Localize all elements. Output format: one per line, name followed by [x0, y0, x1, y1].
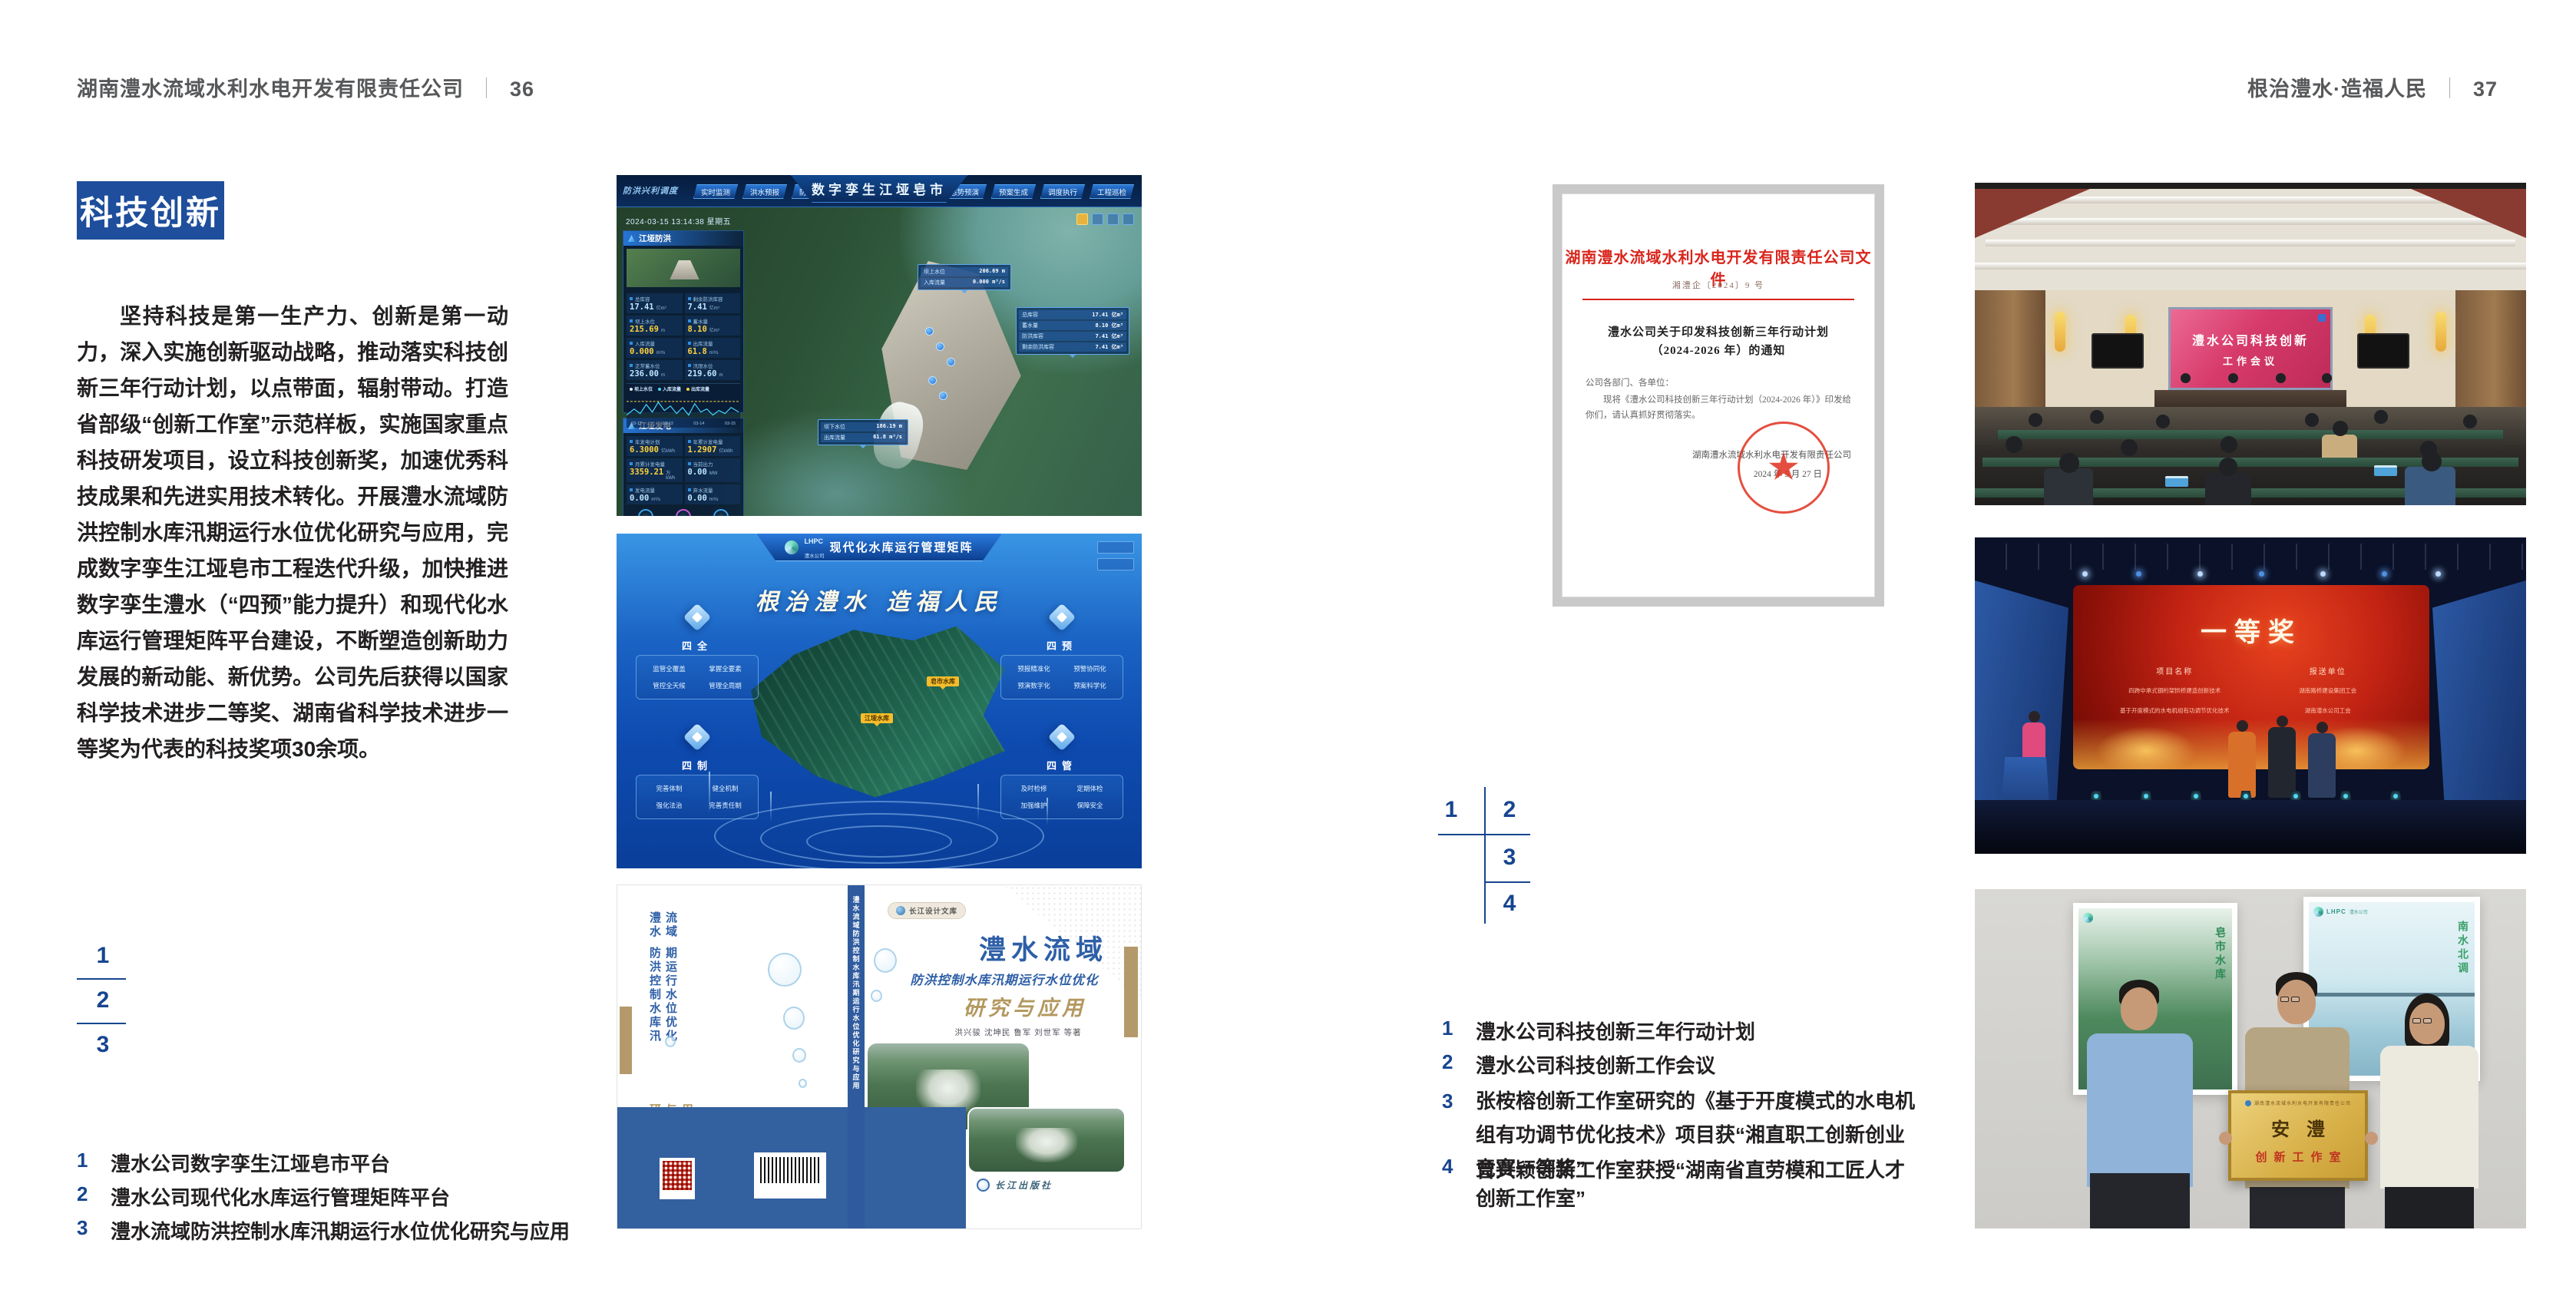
mode-label: 防洪兴利调度: [623, 184, 678, 197]
series-badge: 长江设计文库: [888, 902, 966, 919]
screen-title-line2: 工作会议: [2223, 353, 2278, 368]
figure-index-4: 4: [1488, 891, 1531, 917]
flood-stats-grid: 总库容17.41亿m³ 剩余防洪库容7.41亿m³ 坝上水位215.69m 蓄水…: [623, 290, 743, 383]
chart-legend: 坝上水位 入库流量 出库流量: [627, 384, 740, 394]
water-droplet: [871, 990, 882, 1002]
stat-item: 月累计发电量3359.21万kWh: [627, 458, 683, 482]
dam-photo-small: [967, 1107, 1126, 1173]
callout-downstream: 坝下水位186.19 m 出库流量61.8 m³/s: [818, 419, 908, 445]
stage-light: [2082, 571, 2088, 577]
header-separator: ｜: [2439, 78, 2461, 101]
bridge-deck: [2309, 993, 2475, 997]
plaque-header: 湖南澧水流域水利水电开发有限责任公司: [2245, 1099, 2351, 1106]
caption-text: 澧水公司科技创新三年行动计划: [1476, 1017, 1755, 1045]
map-label-zaoshi: 皂市水库: [927, 676, 959, 686]
caption-row: 2澧水公司现代化水库运行管理矩阵平台: [77, 1182, 450, 1211]
letterhead-rule: [1582, 299, 1854, 300]
power-stats-grid: 年发电计划6.3000亿kWh 年累计发电量1.2907亿kWh 月累计发电量3…: [623, 433, 743, 508]
water-droplet: [783, 1007, 805, 1030]
audience-head: [2422, 451, 2442, 471]
glow-blob: [2096, 726, 2196, 769]
stat-item: 年发电计划6.3000亿kWh: [627, 436, 683, 456]
blue-polo-shirt: [2087, 1033, 2193, 1187]
locate-icon: [1107, 213, 1119, 225]
panelist-head: [2181, 373, 2191, 383]
panel-box-yu: 预报精准化预警协同化预演数字化预案科学化: [1000, 655, 1123, 699]
tissue-box: [2165, 476, 2188, 487]
audience-figure: [2205, 473, 2251, 505]
light-strip: [1986, 240, 2515, 246]
document-body: 现将《澧水公司科技创新三年行动计划（2024-2026 年）》印发给你们，请认真…: [1586, 392, 1851, 423]
fullscreen-button: [1097, 541, 1134, 554]
company-name: 湖南澧水流域水利水电开发有限责任公司: [77, 78, 464, 101]
power-panel: 江垭发电 年发电计划6.3000亿kWh 年累计发电量1.2907亿kWh 月累…: [623, 418, 744, 516]
document-salutation: 公司各部门、各单位：: [1586, 375, 1674, 391]
series-name: 长江设计文库: [909, 905, 957, 916]
figure-award-ceremony: 一等奖 项目名称 报送单位 四跨中承式钢桁架拱桥建造创新技术 湖南路桥建设集团工…: [1975, 537, 2526, 854]
legend-item: 入库流量: [658, 385, 681, 392]
gate-marker: [936, 342, 944, 351]
gate-marker: [925, 327, 934, 336]
user-icon: [1076, 213, 1088, 225]
book-authors: 洪兴骏 沈坤民 鲁军 刘世军 等著: [906, 1027, 1130, 1038]
stat-item: 入库流量0.000m³/s: [627, 338, 683, 358]
left-sidebar: 江垭防洪 总库容17.41亿m³ 剩余防洪库容7.41亿m³ 坝上水位215.6…: [623, 230, 744, 510]
logo-name: 澧水公司: [804, 554, 824, 559]
caption-number: 3: [77, 1216, 97, 1245]
generator-gauges: [623, 508, 743, 516]
rostrum-table: [2154, 390, 2346, 408]
right-tab-group: 态势预演 预案生成 调度执行 工程巡检: [942, 184, 1134, 199]
gauge-icon: [638, 509, 653, 516]
hand: [2219, 1132, 2232, 1145]
figure-book-cover: 澧水流域 防洪控制水库汛期运行水位优化 研究与应用 澧水流域防洪控制水库汛期运行…: [617, 884, 1142, 1229]
flood-panel-header: 江垭防洪: [623, 231, 743, 246]
light-strip: [1975, 263, 2526, 269]
stat-item: 剩余防洪库容7.41亿m³: [685, 293, 741, 313]
caption-text: 澧水流域防洪控制水库汛期运行水位优化研究与应用: [111, 1216, 570, 1245]
legend-item: 坝上水位: [630, 385, 653, 392]
panelist-head: [2276, 373, 2286, 383]
basin-map: [746, 623, 1016, 801]
screen-logo-icon: [2318, 314, 2326, 322]
gate-marker: [939, 392, 947, 400]
trousers: [2250, 1187, 2345, 1228]
caption-number: 2: [1442, 1050, 1462, 1079]
stat-item: 总库容17.41亿m³: [627, 293, 683, 313]
mountain-icon: [628, 235, 635, 242]
side-screen: [2357, 333, 2409, 369]
book-spine: 澧水流域防洪控制水库汛期运行水位优化研究与应用: [848, 885, 865, 1228]
wood-panel: [1975, 290, 2045, 407]
column-header-unit: 报送单位: [2247, 665, 2408, 676]
section-title-badge: 科技创新: [77, 181, 224, 240]
book-subtitle2: 研究与应用: [924, 991, 1126, 1021]
figure-index-1: 1: [81, 943, 124, 969]
white-top: [2380, 1046, 2478, 1189]
document-page: 湖南澧水流域水利水电开发有限责任公司文件 湘澧企〔2024〕9 号 澧水公司关于…: [1562, 193, 1875, 597]
stage-light: [2259, 571, 2264, 577]
figure-index-3: 3: [81, 1032, 124, 1058]
face: [2409, 1003, 2445, 1044]
figure-official-document: 湖南澧水流域水利水电开发有限责任公司文件 湘澧企〔2024〕9 号 澧水公司关于…: [1553, 184, 1884, 607]
stat-item: 年累计发电量1.2907亿kWh: [685, 436, 741, 456]
page37-running-head: 根治澧水·造福人民｜37: [2247, 72, 2498, 102]
light-pillar: [977, 784, 979, 821]
caption-text: 澧水公司现代化水库运行管理矩阵平台: [111, 1182, 450, 1211]
stat-item: 弃水流量0.00m³/s: [685, 484, 741, 504]
page-number-37: 37: [2473, 78, 2498, 101]
stat-item: 正常蓄水位236.00m: [627, 360, 683, 380]
audience-blue-jacket: [2405, 467, 2455, 505]
index-divider: [77, 978, 126, 980]
audience-figure: [2044, 468, 2093, 505]
caption-text: 澧水公司科技创新工作会议: [1476, 1050, 1715, 1079]
caption-number: 2: [77, 1182, 97, 1211]
toolbar-icons: [1076, 213, 1134, 225]
water-droplet: [665, 1036, 676, 1047]
audience-head: [2059, 453, 2079, 473]
ceiling: [1975, 189, 2526, 290]
stat-item: 蓄水量8.10亿m³: [685, 316, 741, 336]
company-logo-icon: [785, 541, 799, 554]
stat-item: 坝上水位215.69m: [627, 316, 683, 336]
body-paragraph: 坚持科技是第一生产力、创新是第一动力，深入实施创新驱动战略，推动落实科技创新三年…: [77, 298, 508, 767]
matrix-title: 现代化水库运行管理矩阵: [829, 539, 973, 555]
plaque-name: 安澧: [2254, 1114, 2342, 1141]
stage-light: [2197, 571, 2203, 577]
tissue-box: [2374, 465, 2397, 476]
document-title-line1: 澧水公司关于印发科技创新三年行动计划: [1562, 323, 1874, 339]
trousers: [2090, 1173, 2190, 1228]
lhpc-abbr: LHPC: [2326, 908, 2346, 915]
award-title: 一等奖: [2073, 611, 2429, 649]
panel-box-zhi: 完善体制健全机制强化法治完善责任制: [636, 775, 759, 819]
index-divider-vertical: [1484, 787, 1486, 924]
datetime-label: 2024-03-15 13:14:38 星期五: [626, 215, 731, 226]
stage-truss: [1975, 544, 2526, 570]
gauge-icon: [713, 509, 729, 516]
stage-light: [2382, 571, 2387, 577]
stat-item: 当前出力0.00MW: [685, 458, 741, 482]
book-title: 澧水流域: [947, 928, 1139, 967]
panelist-head: [2322, 373, 2332, 383]
award-row-unit: 湖南澧水公司工会: [2247, 706, 2408, 715]
plaque-subtitle: 创新工作室: [2248, 1149, 2347, 1165]
panel-box-quan: 监管全覆盖掌握全要素管控全天候管理全周期: [636, 655, 759, 699]
audience-head: [2090, 410, 2104, 424]
figure-index-2: 2: [1488, 797, 1531, 823]
column-header-project: 项目名称: [2095, 665, 2255, 676]
panel-title: 四管: [1000, 758, 1123, 772]
spine-title: 澧水流域防洪控制水库汛期运行水位优化研究与应用: [852, 896, 861, 1090]
light-pillar: [1047, 798, 1048, 825]
stage-light: [2435, 571, 2441, 577]
audience-tan-coat: [2322, 435, 2357, 458]
face: [2277, 980, 2316, 1024]
qr-code: [660, 1158, 695, 1199]
lhpc-name: 澧水公司: [2349, 908, 2368, 915]
terrain-texture: [746, 623, 1016, 801]
wall-lamp: [2435, 312, 2446, 352]
water-level-chart: 坝上水位 入库流量 出库流量 03-1203-1303-1403-15: [627, 383, 740, 428]
flood-panel: 江垭防洪 总库容17.41亿m³ 剩余防洪库容7.41亿m³ 坝上水位215.6…: [623, 230, 744, 413]
award-row-unit: 湖南路桥建设集团工会: [2247, 686, 2408, 695]
index-divider: [1484, 881, 1530, 883]
desk-row: [1998, 430, 2503, 439]
tab-project-inspection: 工程巡检: [1090, 184, 1134, 199]
wood-panel: [2455, 290, 2526, 407]
caption-row: 2澧水公司科技创新工作会议: [1442, 1050, 1918, 1079]
light-strip: [2019, 197, 2482, 203]
winner-orange: [2228, 720, 2256, 798]
legend-item: 出库流量: [686, 385, 709, 392]
barcode: [754, 1152, 826, 1199]
figure-index-1: 1: [1430, 797, 1473, 823]
publisher-mark: 长江出版社: [977, 1179, 1053, 1192]
logo-abbr: LHPC: [804, 537, 823, 545]
x-axis-labels: 03-1203-1303-1403-15: [627, 422, 740, 428]
gate-marker: [928, 376, 937, 385]
official-seal: ★: [1738, 422, 1830, 514]
panel-icon-guan: [1048, 723, 1076, 752]
light-pillar: [770, 792, 772, 822]
ripple-ring: [806, 825, 952, 858]
index-divider: [1438, 834, 1530, 835]
water-droplet: [768, 953, 802, 987]
header-separator: ｜: [476, 78, 498, 101]
dashboard-title: 数字孪生江垭皂市: [791, 175, 967, 203]
caption-row: 3澧水流域防洪控制水库汛期运行水位优化研究与应用: [77, 1216, 570, 1245]
water-droplet: [799, 1079, 807, 1088]
innovation-studio-plaque: 湖南澧水流域水利水电开发有限责任公司 安澧 创新工作室: [2228, 1090, 2368, 1181]
light-strip: [2002, 218, 2498, 225]
figure-digital-twin-dashboard: 防洪兴利调度 实时监测 洪水预报 防洪预警 态势预演 预案生成 调度执行 工程巡…: [617, 175, 1142, 516]
plaque-logo-icon: [2245, 1100, 2251, 1106]
lhpc-logo-icon: [2083, 913, 2093, 923]
audience-head: [2374, 410, 2388, 424]
callout-storage: 总库容17.41 亿m³ 蓄水量8.10 亿m³ 防洪库容7.41 亿m³ 剩余…: [1016, 307, 1129, 355]
panel-box-guan: 及时检修定期体检加强维护保障安全: [1000, 775, 1123, 819]
flood-panel-title: 江垭防洪: [639, 233, 671, 244]
audience-head: [2219, 458, 2237, 476]
water-droplet: [874, 948, 897, 973]
caption-number: 1: [77, 1149, 97, 1177]
panel-icon-zhi: [683, 723, 712, 752]
hand: [2365, 1132, 2378, 1145]
audience-head: [2121, 439, 2138, 456]
caption-text: 曾兴颖创新工作室获授“湖南省直劳模和工匠人才创新工作室”: [1476, 1155, 1918, 1212]
page-number-36: 36: [510, 78, 534, 101]
callout-upstream: 坝上水位206.69 m 入库流量0.000 m³/s: [918, 264, 1011, 290]
back-cover-tan-tab: [620, 1007, 632, 1074]
seal-star-icon: ★: [1768, 451, 1798, 484]
poster-logo: [2083, 913, 2093, 923]
wall-lamp: [2055, 312, 2065, 352]
sparkline: [627, 394, 740, 422]
presenter-suit: [2268, 716, 2296, 798]
figure-index-3: 3: [1488, 845, 1531, 871]
page36-running-head: 湖南澧水流域水利水电开发有限责任公司｜36: [77, 72, 534, 102]
award-row-project: 四跨中承式钢桁架拱桥建造创新技术: [2095, 686, 2255, 695]
award-row-project: 基于开度模式的水电机组有功调节优化技术: [2095, 706, 2255, 715]
gauge-icon: [676, 509, 691, 516]
face: [2121, 987, 2158, 1030]
book-subtitle: 防洪控制水库汛期运行水位优化: [871, 970, 1138, 988]
menu-button: [1097, 558, 1134, 570]
panel-title: 四制: [636, 758, 759, 772]
audience-head: [2029, 413, 2042, 427]
document-title-line2: （2024-2026 年）的通知: [1562, 342, 1874, 358]
caption-row: 1澧水公司科技创新三年行动计划: [1442, 1017, 1918, 1045]
trousers: [2385, 1187, 2474, 1228]
stage-floor: [1975, 800, 2526, 854]
figure-index-2: 2: [81, 987, 124, 1013]
poster-right-label: 南水北调: [2455, 921, 2470, 976]
poster-logo: LHPC澧水公司: [2313, 907, 2368, 917]
document-number: 湘澧企〔2024〕9 号: [1562, 279, 1874, 291]
audience-head: [2305, 413, 2319, 427]
layers-icon: [1092, 213, 1103, 225]
panel-title: 四预: [1000, 638, 1123, 653]
caption-row: 4曾兴颖创新工作室获授“湖南省直劳模和工匠人才创新工作室”: [1442, 1155, 1918, 1212]
stat-item: 汛限水位219.60m: [685, 360, 741, 380]
publisher-logo-icon: [977, 1179, 990, 1192]
index-divider: [77, 1023, 126, 1024]
projection-screen: 澧水公司科技创新 工作会议: [2168, 307, 2333, 390]
front-cover-blue-band: [865, 1107, 966, 1229]
gate-marker: [947, 358, 955, 366]
screen-title-line1: 澧水公司科技创新: [2192, 330, 2309, 349]
tab-flood-forecast: 洪水预报: [742, 184, 787, 199]
audience-head: [2156, 415, 2170, 428]
winner-navy: [2308, 722, 2336, 798]
tab-plan-generation: 预案生成: [991, 184, 1036, 199]
caption-text: 澧水公司数字孪生江垭皂市平台: [111, 1149, 390, 1177]
settings-icon: [1123, 213, 1134, 225]
lhpc-logo-icon: [2313, 907, 2323, 917]
glasses-icon: [2280, 997, 2300, 1002]
figure-meeting-photo: 澧水公司科技创新 工作会议: [1975, 183, 2526, 505]
caption-number: 4: [1442, 1155, 1462, 1212]
audience-head: [2006, 436, 2022, 453]
tab-realtime-monitor: 实时监测: [693, 184, 738, 199]
stage-light: [2320, 571, 2326, 577]
publisher-name: 长江出版社: [995, 1179, 1053, 1192]
light-pillar: [709, 772, 710, 815]
stat-item: 发电流量0.00m³/s: [627, 484, 683, 504]
figure-management-matrix: LHPC澧水公司 现代化水库运行管理矩阵 根治澧水 造福人民 皂市水库 江垭水库…: [617, 534, 1142, 868]
audience-head: [2463, 415, 2477, 428]
panelist-head: [2228, 373, 2238, 383]
glasses-icon: [2412, 1018, 2432, 1023]
stat-item: 出库流量61.8m³/s: [685, 338, 741, 358]
front-cover-tan-bar: [1124, 947, 1138, 1037]
figure-plaque-photo: 皂市水库 LHPC澧水公司 南水北调: [1975, 889, 2526, 1228]
water-droplet: [792, 1048, 806, 1063]
tab-dispatch-execution: 调度执行: [1040, 184, 1085, 199]
audience-head: [2221, 436, 2237, 453]
stage-light: [2136, 571, 2141, 577]
side-screen: [2092, 333, 2144, 369]
audience-head: [2333, 421, 2348, 436]
page37-motto: 根治澧水·造福人民: [2247, 78, 2427, 101]
map-label-jiangya: 江垭水库: [861, 713, 893, 723]
caption-number: 1: [1442, 1017, 1462, 1045]
matrix-header: LHPC澧水公司 现代化水库运行管理矩阵: [756, 534, 1002, 561]
caption-row: 1澧水公司数字孪生江垭皂市平台: [77, 1149, 390, 1177]
magazine-spread: 湖南澧水流域水利水电开发有限责任公司｜36 根治澧水·造福人民｜37 科技创新 …: [0, 0, 2576, 1306]
series-logo-icon: [896, 906, 905, 915]
dam-thumbnail: [627, 249, 740, 287]
poster-left-label: 皂市水库: [2212, 927, 2227, 982]
panel-title: 四全: [636, 638, 759, 653]
